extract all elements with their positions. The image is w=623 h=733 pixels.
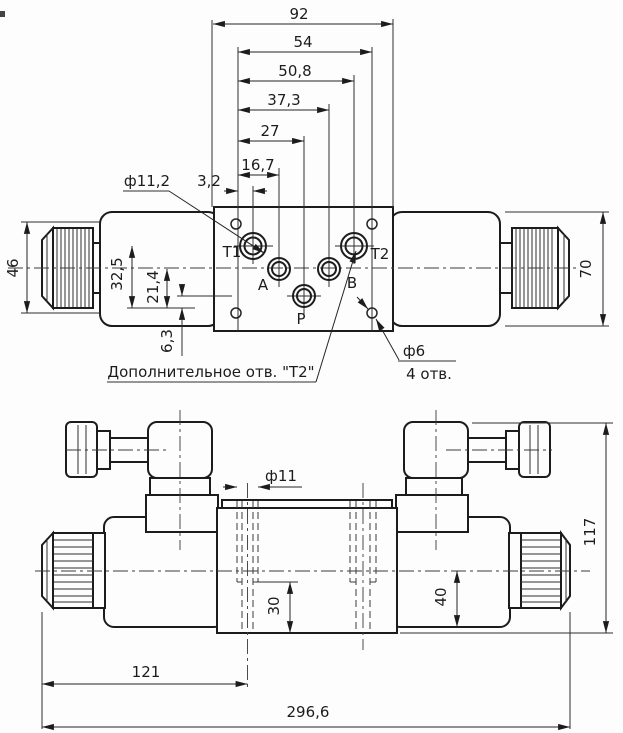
dim-121: 121	[132, 663, 161, 681]
knob-left-front	[42, 533, 105, 608]
port-label-P: P	[296, 310, 305, 328]
mount-hole-diameter-label: ф6	[403, 342, 425, 360]
dim-32-5: 32,5	[108, 257, 126, 290]
dim-296-6: 296,6	[287, 703, 330, 721]
dim-46: 46	[4, 258, 22, 277]
dim-37-3: 37,3	[267, 91, 300, 109]
mount-hole-count-label: 4 отв.	[406, 365, 452, 383]
dim-50-8: 50,8	[278, 62, 311, 80]
dim-30: 30	[265, 596, 283, 615]
cable-gland-cap	[519, 422, 550, 477]
port-label-T1: T1	[222, 243, 242, 261]
callout-hole-dia-front: ф11	[223, 467, 302, 487]
front-view: ф11 30 40 117 121 29	[35, 410, 613, 729]
dim-16-7: 16,7	[241, 156, 274, 174]
port-label-A: A	[258, 276, 269, 294]
port-label-T2: T2	[370, 245, 390, 263]
top-view: 92 54 50,8 37,3 27 16,7 3,2 46 32,5 21,4…	[4, 5, 609, 383]
dim-54: 54	[293, 33, 312, 51]
dim-40: 40	[432, 587, 450, 606]
dim-27: 27	[260, 122, 279, 140]
connector-base	[396, 495, 468, 532]
valve-drawing-canvas: 92 54 50,8 37,3 27 16,7 3,2 46 32,5 21,4…	[0, 0, 623, 733]
dim-3-2: 3,2	[197, 172, 221, 190]
dim-117: 117	[581, 518, 599, 547]
dim-f11: ф11	[265, 467, 297, 485]
dim-6-3: 6,3	[158, 329, 176, 353]
extra-port-note: Дополнительное отв. "Т2"	[107, 363, 314, 381]
solenoid-left-front-view	[104, 517, 224, 627]
solenoid-right-front-view	[390, 517, 510, 627]
sheet-corner-mark	[0, 11, 5, 17]
drawing-sheet: 92 54 50,8 37,3 27 16,7 3,2 46 32,5 21,4…	[0, 0, 623, 733]
dim-92: 92	[289, 5, 308, 23]
dimension-chain-horizontal: 92 54 50,8 37,3 27 16,7 3,2	[197, 5, 393, 191]
port-diameter-label: ф11,2	[124, 172, 170, 190]
connector-base	[146, 495, 218, 532]
dim-70: 70	[577, 259, 595, 278]
dim-21-4: 21,4	[144, 270, 162, 303]
connector-neck	[406, 478, 462, 495]
port-label-B: B	[347, 274, 357, 292]
knob-right-front	[509, 533, 570, 608]
cable-gland-cap	[66, 422, 97, 477]
solenoid-right-top-view	[390, 212, 500, 326]
